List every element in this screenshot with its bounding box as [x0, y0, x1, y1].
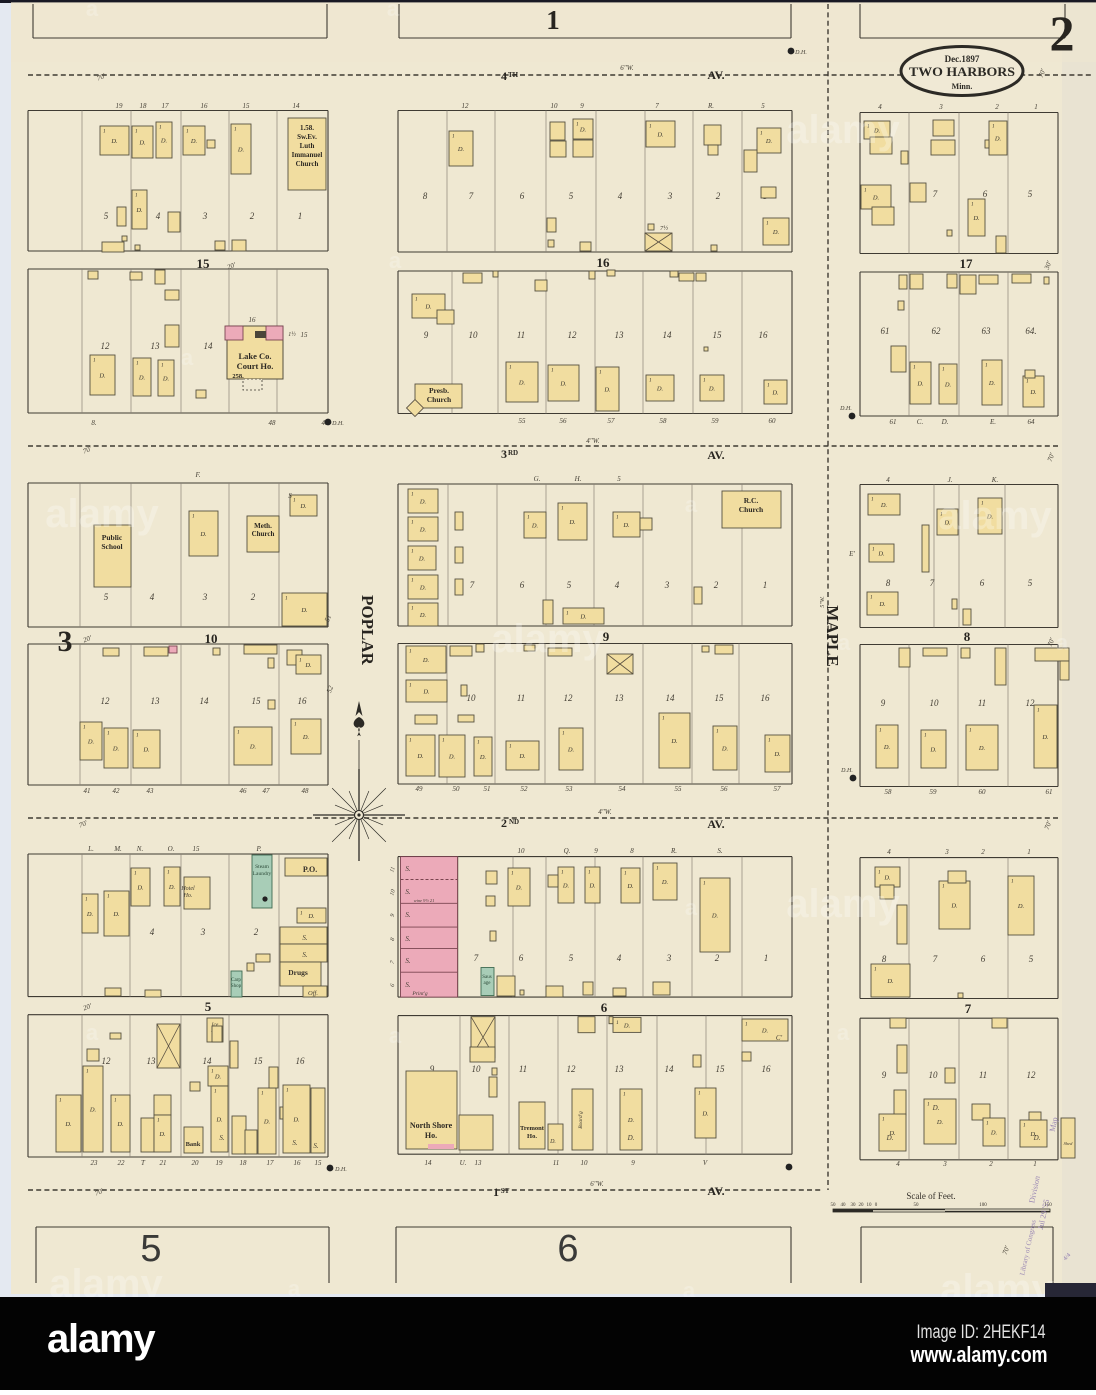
svg-text:TH: TH [508, 71, 519, 79]
svg-text:4: 4 [156, 211, 161, 221]
svg-text:L.: L. [87, 845, 94, 853]
svg-text:Ho.: Ho. [425, 1131, 437, 1140]
svg-text:D.: D. [627, 1134, 635, 1142]
svg-text:D.: D. [448, 754, 456, 761]
svg-text:D.: D. [199, 531, 207, 538]
svg-text:1: 1 [576, 122, 579, 128]
svg-text:D.: D. [116, 1121, 124, 1128]
svg-text:4: 4 [887, 848, 891, 856]
svg-text:8: 8 [886, 578, 891, 588]
svg-text:4: 4 [617, 953, 622, 963]
svg-text:1: 1 [409, 649, 412, 655]
svg-text:D.: D. [772, 229, 780, 236]
svg-text:a: a [387, 0, 400, 21]
svg-text:1: 1 [768, 738, 771, 744]
svg-text:D.: D. [765, 138, 773, 145]
svg-text:D.: D. [87, 739, 95, 746]
svg-text:9: 9 [881, 698, 886, 708]
svg-text:F.: F. [194, 471, 200, 479]
svg-text:11: 11 [517, 693, 525, 703]
svg-text:48: 48 [302, 787, 310, 795]
svg-text:1: 1 [767, 383, 770, 389]
svg-text:D.: D. [419, 612, 427, 619]
svg-text:51: 51 [484, 785, 491, 793]
svg-text:D.: D. [292, 1117, 300, 1124]
svg-text:1: 1 [1033, 1160, 1037, 1168]
svg-text:6: 6 [983, 189, 988, 199]
svg-text:11: 11 [553, 1159, 559, 1167]
svg-text:1: 1 [871, 497, 874, 503]
svg-text:60: 60 [979, 788, 987, 796]
svg-text:54: 54 [619, 785, 627, 793]
svg-text:Shed: Shed [1064, 1141, 1073, 1146]
svg-text:6: 6 [601, 1000, 608, 1015]
svg-text:a: a [838, 630, 851, 655]
svg-text:6: 6 [980, 578, 985, 588]
svg-text:S.: S. [405, 981, 411, 989]
svg-text:1: 1 [214, 1089, 217, 1095]
svg-text:11: 11 [519, 1064, 527, 1074]
svg-text:1: 1 [745, 1022, 748, 1028]
svg-text:Lake Co.: Lake Co. [238, 351, 271, 361]
svg-text:D.: D. [588, 883, 596, 890]
svg-text:42: 42 [113, 787, 121, 795]
svg-text:3: 3 [202, 211, 208, 221]
svg-text:7: 7 [470, 580, 475, 590]
svg-text:1: 1 [649, 124, 652, 130]
svg-text:1: 1 [415, 297, 418, 303]
svg-text:20: 20 [192, 1159, 200, 1167]
svg-text:U.: U. [460, 1159, 467, 1167]
svg-text:S.: S. [302, 934, 308, 942]
svg-text:21: 21 [160, 1159, 167, 1167]
svg-text:59: 59 [712, 417, 720, 425]
svg-text:3: 3 [938, 103, 943, 111]
svg-text:57: 57 [608, 417, 616, 425]
svg-text:a: a [389, 248, 402, 273]
svg-text:17: 17 [267, 1159, 275, 1167]
svg-text:a: a [685, 895, 698, 920]
svg-text:2: 2 [981, 848, 985, 856]
svg-text:D.: D. [721, 746, 729, 753]
svg-text:D.H.: D.H. [839, 406, 852, 412]
svg-text:10: 10 [867, 1203, 873, 1208]
svg-text:1: 1 [157, 1118, 160, 1124]
svg-text:9: 9 [580, 102, 584, 110]
svg-text:11: 11 [978, 698, 986, 708]
svg-text:RD: RD [508, 449, 518, 457]
svg-text:a: a [86, 1020, 99, 1045]
svg-text:Shop: Shop [231, 984, 242, 989]
svg-text:14: 14 [204, 341, 214, 351]
svg-text:14: 14 [665, 1064, 675, 1074]
svg-text:Steam: Steam [255, 864, 269, 870]
svg-text:6"W.: 6"W. [590, 1180, 604, 1188]
svg-text:D.: D. [773, 751, 781, 758]
svg-text:Bank: Bank [186, 1141, 201, 1148]
svg-text:D.: D. [64, 1121, 72, 1128]
svg-text:20: 20 [859, 1203, 865, 1208]
svg-text:alamy: alamy [491, 617, 605, 661]
svg-text:D.: D. [518, 380, 526, 387]
svg-text:4: 4 [150, 927, 155, 937]
svg-text:5: 5 [1028, 189, 1033, 199]
svg-text:1: 1 [1027, 848, 1031, 856]
svg-text:15: 15 [715, 693, 725, 703]
svg-text:D.: D. [162, 376, 170, 383]
svg-text:4: 4 [150, 592, 155, 602]
svg-text:D.: D. [237, 147, 245, 154]
svg-text:School: School [101, 542, 122, 551]
svg-text:D.: D. [419, 527, 427, 534]
svg-text:1: 1 [764, 953, 769, 963]
svg-text:J.: J. [948, 476, 953, 484]
svg-text:2: 2 [251, 592, 256, 602]
svg-text:3: 3 [200, 927, 206, 937]
svg-text:6: 6 [520, 580, 525, 590]
svg-text:D.: D. [941, 418, 949, 426]
svg-text:6: 6 [519, 953, 524, 963]
svg-text:1: 1 [261, 1091, 264, 1097]
svg-text:14: 14 [293, 102, 301, 110]
svg-text:1: 1 [1026, 379, 1029, 385]
svg-text:S.: S. [405, 957, 411, 965]
svg-text:1: 1 [649, 378, 652, 384]
svg-text:3: 3 [202, 592, 208, 602]
svg-text:age: age [484, 981, 492, 986]
svg-text:1: 1 [192, 514, 195, 520]
svg-text:4: 4 [886, 476, 890, 484]
svg-text:D.: D. [623, 1022, 631, 1029]
svg-text:ST: ST [501, 1187, 510, 1195]
svg-text:5: 5 [761, 102, 765, 110]
svg-text:1: 1 [927, 1102, 930, 1108]
svg-text:3: 3 [664, 580, 670, 590]
svg-text:a: a [685, 492, 698, 517]
svg-text:52: 52 [521, 785, 529, 793]
svg-text:alamy: alamy [45, 492, 159, 536]
svg-text:D.: D. [160, 138, 168, 145]
svg-text:1: 1 [86, 1069, 89, 1075]
svg-text:D.: D. [515, 885, 523, 892]
svg-text:D.: D. [422, 689, 430, 696]
svg-text:1: 1 [161, 363, 164, 369]
svg-text:M.: M. [113, 845, 122, 853]
svg-text:58: 58 [885, 788, 893, 796]
svg-text:POPLAR: POPLAR [358, 595, 377, 666]
svg-text:S.: S. [302, 951, 308, 959]
svg-text:1: 1 [411, 520, 414, 526]
svg-text:Court Ho.: Court Ho. [237, 361, 274, 371]
svg-text:48: 48 [269, 419, 277, 427]
svg-text:1: 1 [509, 365, 512, 371]
svg-text:D.: D. [929, 747, 937, 754]
svg-text:D.: D. [950, 903, 958, 910]
svg-text:58: 58 [660, 417, 668, 425]
svg-text:V: V [703, 1159, 708, 1167]
svg-text:1: 1 [186, 129, 189, 135]
svg-text:1: 1 [409, 738, 412, 744]
svg-text:1: 1 [616, 515, 619, 521]
svg-text:1: 1 [588, 870, 591, 876]
svg-text:D.: D. [112, 746, 120, 753]
svg-text:North Shore: North Shore [410, 1121, 453, 1130]
svg-text:a: a [1056, 630, 1069, 655]
svg-text:ND: ND [509, 818, 519, 826]
svg-text:D.: D. [988, 380, 996, 387]
svg-text:D.: D. [656, 132, 664, 139]
svg-text:D.: D. [138, 375, 146, 382]
svg-text:N.: N. [136, 845, 144, 853]
svg-text:Laundry: Laundry [253, 871, 272, 877]
svg-text:10: 10 [518, 847, 526, 855]
svg-text:Tremont: Tremont [520, 1125, 545, 1132]
svg-text:www.alamy.com: www.alamy.com [910, 1342, 1048, 1367]
svg-text:D.: D. [112, 911, 120, 918]
svg-text:1: 1 [698, 1091, 701, 1097]
svg-text:1: 1 [59, 1098, 62, 1104]
svg-text:D.: D. [518, 753, 526, 760]
svg-text:47: 47 [263, 787, 271, 795]
svg-text:7: 7 [655, 102, 659, 110]
svg-text:D.: D. [249, 744, 257, 751]
svg-text:1: 1 [561, 870, 564, 876]
svg-text:18: 18 [240, 1159, 248, 1167]
svg-text:7: 7 [474, 953, 479, 963]
svg-text:D.: D. [1017, 903, 1025, 910]
svg-text:7: 7 [930, 578, 935, 588]
svg-text:15: 15 [315, 1159, 323, 1167]
svg-text:30: 30 [851, 1203, 857, 1208]
svg-text:D.: D. [880, 502, 888, 509]
svg-text:16: 16 [294, 1159, 302, 1167]
svg-text:D.: D. [89, 1107, 97, 1114]
svg-text:1: 1 [716, 729, 719, 735]
svg-text:1: 1 [452, 134, 455, 140]
svg-text:1: 1 [442, 738, 445, 744]
svg-text:5: 5 [617, 475, 621, 483]
svg-text:1: 1 [509, 744, 512, 750]
svg-text:1: 1 [409, 683, 412, 689]
svg-text:4: 4 [618, 191, 623, 201]
svg-text:D.H.: D.H. [334, 1167, 347, 1173]
svg-text:3: 3 [942, 1160, 947, 1168]
svg-text:D.: D. [479, 754, 487, 761]
svg-text:D.: D. [761, 1028, 769, 1035]
svg-text:7: 7 [469, 191, 474, 201]
svg-text:64: 64 [1028, 418, 1036, 426]
svg-text:AV.: AV. [707, 68, 724, 82]
svg-text:1: 1 [107, 731, 110, 737]
svg-text:1: 1 [703, 378, 706, 384]
svg-text:1: 1 [942, 367, 945, 373]
svg-text:D.: D. [670, 738, 678, 745]
svg-text:D.: D. [886, 978, 894, 985]
svg-text:16: 16 [762, 1064, 772, 1074]
svg-text:S.: S. [405, 935, 411, 943]
svg-text:10: 10 [205, 631, 218, 646]
svg-text:D.: D. [656, 386, 664, 393]
svg-text:9: 9 [631, 1159, 635, 1167]
svg-text:15: 15 [301, 331, 309, 339]
svg-text:59: 59 [930, 788, 938, 796]
svg-text:Presb.: Presb. [429, 386, 449, 395]
svg-text:1: 1 [411, 549, 414, 555]
svg-text:10: 10 [581, 1159, 589, 1167]
svg-text:16: 16 [759, 330, 769, 340]
svg-text:57: 57 [774, 785, 782, 793]
svg-text:5: 5 [567, 580, 572, 590]
svg-text:11: 11 [517, 330, 525, 340]
svg-text:D.: D. [416, 753, 424, 760]
svg-text:Luth: Luth [300, 142, 315, 150]
svg-text:D.: D. [1041, 734, 1049, 741]
svg-text:6: 6 [520, 191, 525, 201]
svg-text:18: 18 [140, 102, 148, 110]
svg-text:7½: 7½ [660, 225, 668, 232]
svg-text:13: 13 [147, 1056, 157, 1066]
svg-text:D.: D. [214, 1074, 222, 1081]
svg-text:D.: D. [579, 127, 587, 134]
svg-text:S.: S. [405, 888, 411, 896]
svg-text:D.: D. [422, 657, 430, 664]
svg-text:15: 15 [197, 256, 211, 271]
svg-text:1: 1 [561, 506, 564, 512]
svg-text:O.: O. [168, 845, 175, 853]
svg-text:64.: 64. [1025, 326, 1036, 336]
svg-text:S.: S. [405, 911, 411, 919]
svg-text:1: 1 [656, 866, 659, 872]
svg-text:S.: S. [219, 1134, 225, 1142]
svg-text:D.: D. [549, 1139, 556, 1145]
svg-text:S.: S. [405, 865, 411, 873]
svg-text:S: S [288, 492, 292, 500]
svg-text:14: 14 [200, 696, 210, 706]
svg-text:4: 4 [615, 580, 620, 590]
svg-text:1: 1 [913, 365, 916, 371]
svg-text:D.: D. [136, 885, 144, 892]
svg-text:1: 1 [566, 611, 569, 617]
svg-text:1½: 1½ [288, 331, 296, 338]
svg-text:Immanuel: Immanuel [292, 151, 323, 159]
svg-text:5: 5 [104, 211, 109, 221]
svg-text:8: 8 [630, 847, 634, 855]
svg-text:alamy: alamy [786, 882, 900, 926]
svg-text:6: 6 [557, 1228, 578, 1270]
svg-text:C.: C. [917, 418, 924, 426]
svg-text:8.: 8. [91, 419, 97, 427]
svg-text:56: 56 [721, 785, 729, 793]
svg-text:D.: D. [883, 875, 891, 882]
svg-text:a: a [837, 1020, 850, 1045]
svg-text:17: 17 [162, 102, 170, 110]
svg-text:50: 50 [453, 785, 461, 793]
svg-text:49: 49 [416, 785, 424, 793]
svg-text:Carp: Carp [231, 978, 241, 983]
svg-text:D.: D. [457, 146, 465, 153]
svg-text:D.: D. [418, 556, 426, 563]
svg-text:D.: D. [300, 607, 308, 614]
svg-text:15: 15 [193, 845, 201, 853]
svg-text:Meth.: Meth. [254, 522, 272, 530]
svg-text:13: 13 [151, 696, 161, 706]
svg-text:1: 1 [85, 897, 88, 903]
svg-text:1: 1 [411, 606, 414, 612]
svg-text:12: 12 [568, 330, 578, 340]
svg-text:Church: Church [252, 530, 275, 538]
svg-text:3: 3 [58, 625, 73, 658]
svg-text:D.: D. [916, 381, 924, 388]
svg-text:8: 8 [882, 954, 887, 964]
svg-text:a: a [389, 1023, 402, 1048]
svg-text:1: 1 [1034, 103, 1038, 111]
svg-text:1: 1 [924, 733, 927, 739]
svg-text:1.58.: 1.58. [300, 124, 314, 132]
svg-text:1: 1 [103, 129, 106, 135]
svg-text:50: 50 [914, 1203, 920, 1208]
svg-text:1: 1 [760, 131, 763, 137]
svg-text:1: 1 [766, 221, 769, 227]
svg-text:1: 1 [969, 728, 972, 734]
svg-text:1: 1 [93, 358, 96, 364]
svg-text:2: 2 [995, 103, 999, 111]
svg-text:D.: D. [627, 1117, 635, 1124]
svg-text:Drugs: Drugs [288, 968, 308, 977]
svg-text:2: 2 [716, 191, 721, 201]
svg-text:1: 1 [83, 725, 86, 731]
svg-text:TWO HARBORS: TWO HARBORS [909, 65, 1015, 79]
svg-text:1: 1 [493, 1185, 499, 1199]
svg-text:60: 60 [769, 417, 777, 425]
svg-text:5: 5 [1029, 954, 1034, 964]
svg-text:D.: D. [531, 523, 539, 530]
svg-text:D.: D. [168, 884, 176, 891]
svg-text:6"W.: 6"W. [620, 64, 634, 72]
svg-text:16: 16 [249, 316, 257, 324]
svg-text:14: 14 [425, 1159, 433, 1167]
svg-text:62: 62 [932, 326, 942, 336]
svg-text:2: 2 [250, 211, 255, 221]
svg-text:12: 12 [102, 1056, 112, 1066]
svg-text:13: 13 [615, 693, 625, 703]
svg-text:7: 7 [965, 1001, 972, 1016]
svg-text:D.: D. [701, 1111, 709, 1118]
svg-text:5: 5 [569, 953, 574, 963]
svg-text:43: 43 [147, 787, 155, 795]
svg-text:41: 41 [84, 787, 91, 795]
svg-text:D.: D. [622, 522, 630, 529]
svg-text:D.: D. [1029, 389, 1037, 396]
svg-text:AV.: AV. [707, 817, 724, 831]
svg-text:1: 1 [134, 871, 137, 877]
svg-text:15: 15 [716, 1064, 726, 1074]
svg-text:14: 14 [663, 330, 673, 340]
svg-text:4: 4 [501, 69, 507, 83]
svg-text:55: 55 [519, 417, 527, 425]
svg-text:1: 1 [293, 498, 296, 504]
svg-text:16: 16 [298, 696, 308, 706]
svg-text:4: 4 [896, 1160, 900, 1168]
svg-text:D.: D. [559, 381, 567, 388]
svg-text:15: 15 [243, 102, 251, 110]
svg-text:G.: G. [534, 475, 541, 483]
svg-text:alamy: alamy [938, 494, 1052, 538]
svg-text:Ho.: Ho. [527, 1133, 537, 1140]
svg-text:1: 1 [942, 884, 945, 890]
svg-text:1: 1 [551, 368, 554, 374]
svg-text:5: 5 [104, 592, 109, 602]
svg-text:5: 5 [569, 191, 574, 201]
